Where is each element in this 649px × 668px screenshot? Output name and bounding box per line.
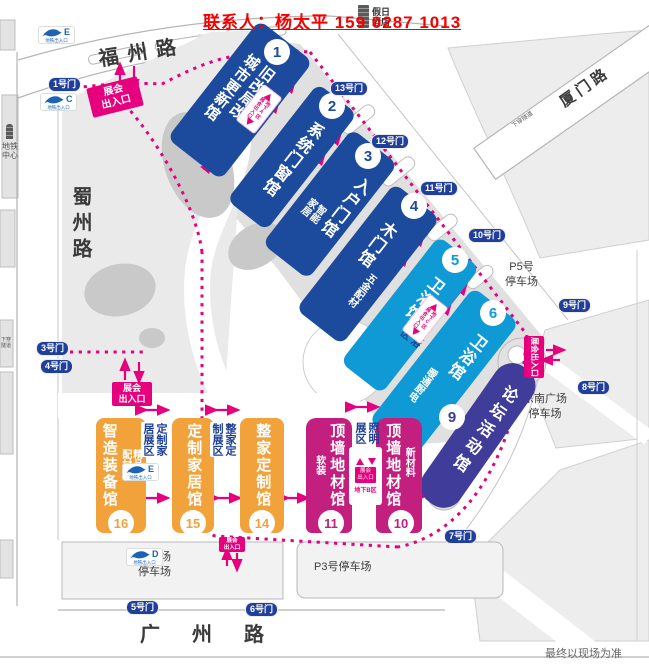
gate-13: 13号门 bbox=[330, 81, 368, 96]
gate-1: 1号门 bbox=[48, 77, 81, 92]
metro-entrance-C: C 地铁出入口 bbox=[40, 93, 77, 111]
gate-3: 3号门 bbox=[36, 341, 69, 356]
hall-15-name: 定制家居馆 bbox=[185, 423, 202, 508]
expo-entrance-line2: 出入口 bbox=[357, 475, 374, 482]
up-arrow-icon bbox=[356, 458, 364, 465]
underground-entrance-B: 展会 出入口 地下B区 bbox=[349, 447, 382, 505]
expo-entrance-line1: 展会 bbox=[123, 383, 141, 394]
hall-16-name: 智造装备馆 bbox=[100, 423, 117, 508]
hall-11-sub: 软装 bbox=[314, 455, 325, 479]
gate-4: 4号门 bbox=[40, 359, 73, 374]
metro-center-line1: 地铁 bbox=[2, 142, 18, 151]
expo-entrance-line2: 出入口 bbox=[224, 545, 241, 552]
hall-9-number: 9 bbox=[439, 404, 465, 430]
bottomright-block bbox=[470, 440, 649, 641]
gate-11: 11号门 bbox=[420, 181, 458, 196]
metro-entrance-E1: E 地铁出入口 bbox=[38, 26, 75, 44]
down-arrow-icon bbox=[368, 458, 376, 465]
zone-lighting-col1: 照明 bbox=[367, 422, 379, 444]
parking-p5-line2: 停车场 bbox=[505, 275, 538, 290]
metro-exit-caption: 地铁出入口 bbox=[129, 560, 160, 565]
expo-entrance-south: 展会 出入口 bbox=[219, 537, 245, 552]
venue-map: 联系人：杨太平 159 0287 1013 假日 酒店 福州路 蜀州路 广州路 … bbox=[0, 0, 649, 668]
hall-14-number: 14 bbox=[249, 510, 275, 536]
hall-16-number: 16 bbox=[108, 510, 134, 536]
metro-entrance-D: D 地铁出入口 bbox=[126, 548, 163, 566]
hall-1-number: 1 bbox=[264, 39, 290, 65]
zone-custom-home-col1: 定制家 bbox=[155, 423, 167, 456]
gate-8: 8号门 bbox=[577, 380, 610, 395]
west-buildings bbox=[0, 20, 18, 578]
hall-10-number: 10 bbox=[388, 510, 414, 536]
gate-10: 10号门 bbox=[468, 228, 506, 243]
metro-logo-icon bbox=[125, 465, 147, 475]
hall-11-number: 11 bbox=[318, 510, 344, 536]
expo-entrance-east: 展会出入口 bbox=[524, 336, 544, 378]
underground-area-label: 地下B区 bbox=[354, 485, 376, 494]
hall-10-sub: 新材料 bbox=[403, 447, 414, 483]
south-corridor bbox=[58, 393, 360, 418]
metro-exit-caption: 地铁出入口 bbox=[41, 38, 72, 43]
metro-exit-letter: E bbox=[64, 28, 70, 37]
parking-p5: P5号 停车场 bbox=[505, 260, 538, 290]
road-label-shuzhou: 蜀州路 bbox=[66, 186, 95, 264]
hall-14-name: 整家定制馆 bbox=[254, 423, 271, 508]
parking-se-line2: 停车场 bbox=[523, 407, 567, 422]
hall-2-number: 2 bbox=[319, 93, 345, 119]
metro-center-label: 地铁 中心 bbox=[2, 142, 18, 160]
zone-lighting: 照明 展区 bbox=[353, 421, 380, 445]
metro-logo-icon bbox=[41, 28, 63, 38]
hall-10-name: 顶墙地材馆 bbox=[384, 423, 401, 508]
hall-5-number: 5 bbox=[442, 247, 468, 273]
metro-entrance-E2: E 地铁出入口 bbox=[122, 463, 159, 481]
zone-whole-home-col2: 制展区 bbox=[211, 423, 223, 456]
metro-exit-letter: C bbox=[66, 95, 73, 104]
parking-south-line2: 停车场 bbox=[138, 565, 171, 580]
hall-15-number: 15 bbox=[180, 510, 206, 536]
road-label-guangzhou: 广州路 bbox=[140, 618, 296, 647]
expo-entrance-line1: 展会 bbox=[357, 468, 374, 475]
parking-p5-line1: P5号 bbox=[505, 260, 538, 275]
zone-whole-home-col1: 整家定 bbox=[224, 423, 236, 456]
zone-lighting-col2: 展区 bbox=[354, 422, 366, 444]
expo-entrance-line2: 出入口 bbox=[118, 394, 145, 405]
expo-entrance-label: 展会出入口 bbox=[529, 337, 539, 377]
metro-center-icon bbox=[6, 124, 13, 139]
zone-custom-home-col2: 居展区 bbox=[142, 423, 154, 456]
footnote: 最终以现场为准 bbox=[545, 645, 622, 661]
parking-p3: P3号停车场 bbox=[314, 560, 371, 575]
gate-6: 6号门 bbox=[245, 602, 278, 617]
metro-logo-icon bbox=[129, 550, 151, 560]
metro-center-line2: 中心 bbox=[2, 151, 18, 160]
metro-exit-caption: 地铁出入口 bbox=[125, 475, 156, 480]
hall-6-number: 6 bbox=[480, 300, 506, 326]
gate-9: 9号门 bbox=[558, 298, 591, 313]
tunnel-label-west: 下穿隧道 bbox=[1, 338, 13, 350]
metro-exit-letter: D bbox=[152, 550, 159, 559]
expo-entrance-west: 展会 出入口 bbox=[112, 382, 152, 406]
hall-11-name: 顶墙地材馆 bbox=[328, 423, 345, 508]
gate-5: 5号门 bbox=[126, 600, 159, 615]
zone-custom-home: 定制家 居展区 bbox=[141, 422, 168, 457]
expo-entrance-line1: 展会 bbox=[226, 538, 237, 545]
contact-info: 联系人：杨太平 159 0287 1013 bbox=[203, 8, 461, 33]
hall-4-number: 4 bbox=[401, 193, 427, 219]
metro-exit-letter: E bbox=[148, 465, 154, 474]
gate-7: 7号门 bbox=[444, 529, 477, 544]
metro-logo-icon bbox=[43, 95, 65, 105]
gate-12: 12号门 bbox=[371, 134, 409, 149]
metro-exit-caption: 地铁出入口 bbox=[43, 105, 74, 110]
underground-entrance-chip: 展会 出入口 bbox=[355, 467, 376, 482]
zone-whole-home: 整家定 制展区 bbox=[210, 422, 237, 457]
